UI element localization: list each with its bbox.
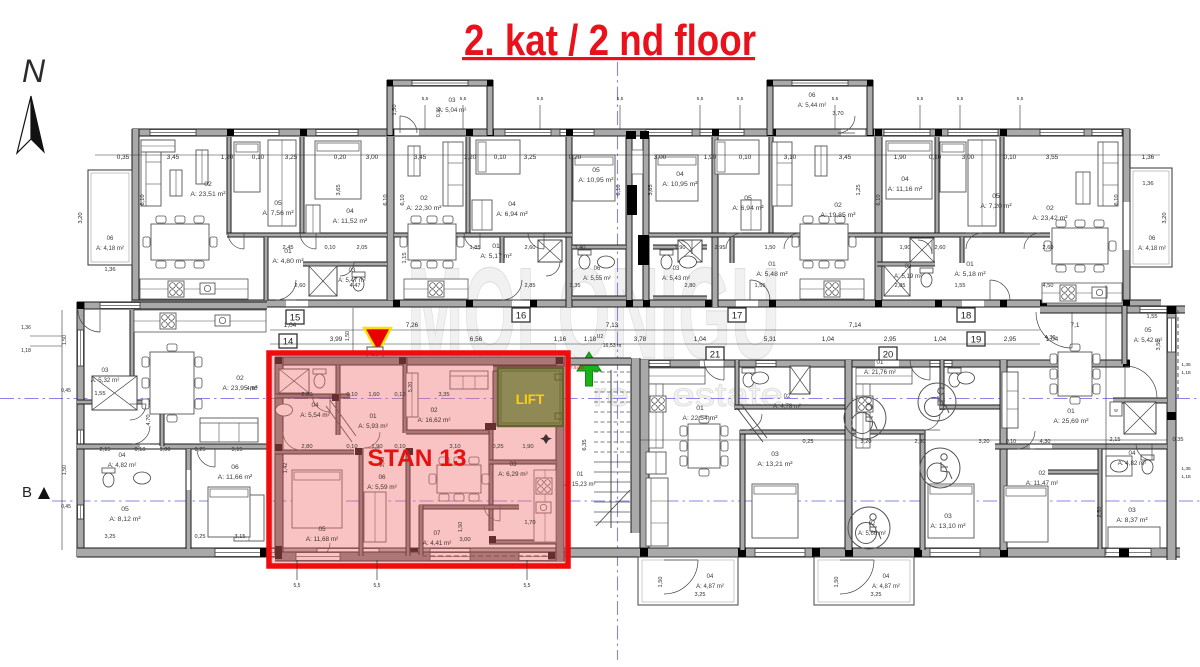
svg-text:1,36: 1,36 <box>1142 181 1153 187</box>
svg-text:05: 05 <box>592 167 600 174</box>
svg-text:5,5: 5,5 <box>697 96 704 102</box>
svg-text:0,45: 0,45 <box>61 504 71 510</box>
svg-text:2,80: 2,80 <box>301 392 312 398</box>
svg-text:2,95: 2,95 <box>1004 336 1017 343</box>
svg-text:05: 05 <box>318 526 326 533</box>
svg-text:5,5: 5,5 <box>737 96 744 102</box>
svg-text:1,18: 1,18 <box>1181 370 1191 376</box>
svg-text:2,05: 2,05 <box>357 245 368 251</box>
svg-text:A: 8,37 m²: A: 8,37 m² <box>1116 517 1148 524</box>
svg-text:3,78: 3,78 <box>634 336 647 343</box>
svg-text:A: 11,68 m²: A: 11,68 m² <box>306 536 339 543</box>
svg-text:04: 04 <box>707 574 714 580</box>
svg-text:1,04: 1,04 <box>934 336 947 343</box>
svg-text:1,55: 1,55 <box>755 283 766 289</box>
svg-text:B: B <box>22 484 32 501</box>
svg-text:0,25: 0,25 <box>492 444 503 450</box>
svg-text:5,5: 5,5 <box>537 96 544 102</box>
svg-text:1,40: 1,40 <box>575 245 586 251</box>
svg-text:LIFT: LIFT <box>516 392 545 407</box>
svg-text:0,10: 0,10 <box>1006 439 1016 445</box>
svg-text:1,36: 1,36 <box>21 325 31 331</box>
svg-text:2,60: 2,60 <box>295 283 306 289</box>
svg-text:2,95: 2,95 <box>715 245 726 251</box>
svg-text:06: 06 <box>378 474 386 481</box>
svg-text:04: 04 <box>346 208 354 215</box>
svg-text:03: 03 <box>771 451 779 458</box>
svg-text:0,35: 0,35 <box>1173 437 1184 443</box>
svg-text:0,25: 0,25 <box>195 534 206 540</box>
svg-text:5,5: 5,5 <box>957 96 964 102</box>
svg-text:1,50: 1,50 <box>62 465 68 475</box>
svg-text:5,5: 5,5 <box>460 96 467 102</box>
svg-text:6,35: 6,35 <box>582 439 588 450</box>
svg-text:17: 17 <box>732 311 743 322</box>
svg-text:3,20: 3,20 <box>78 212 84 223</box>
svg-text:02: 02 <box>1038 470 1046 477</box>
svg-text:03: 03 <box>673 266 680 272</box>
svg-text:A: 19,85 m²: A: 19,85 m² <box>820 212 856 219</box>
svg-text:A: 4,87 m²: A: 4,87 m² <box>696 584 724 590</box>
svg-text:01: 01 <box>577 472 584 478</box>
svg-text:04: 04 <box>1129 450 1136 457</box>
svg-text:0,25: 0,25 <box>195 447 206 453</box>
svg-text:A: 6,94 m²: A: 6,94 m² <box>732 205 764 212</box>
svg-text:1,50: 1,50 <box>765 245 776 251</box>
svg-text:01: 01 <box>877 359 884 366</box>
svg-text:1,55: 1,55 <box>1147 314 1158 320</box>
svg-text:A: 10,95 m²: A: 10,95 m² <box>578 177 614 184</box>
svg-text:5,5: 5,5 <box>422 96 429 102</box>
svg-text:01: 01 <box>966 261 974 268</box>
svg-text:A: 5,43 m²: A: 5,43 m² <box>662 276 690 282</box>
svg-text:03: 03 <box>944 513 952 520</box>
svg-text:02: 02 <box>236 375 244 382</box>
svg-text:1,15: 1,15 <box>402 252 408 263</box>
svg-text:A: 5,66 m²: A: 5,66 m² <box>858 531 886 537</box>
svg-text:21: 21 <box>710 350 721 361</box>
svg-text:A: 4,18 m²: A: 4,18 m² <box>96 246 124 252</box>
svg-text:A: 22,30 m²: A: 22,30 m² <box>406 205 442 212</box>
svg-text:03: 03 <box>349 268 356 274</box>
svg-text:6,56: 6,56 <box>470 336 483 343</box>
svg-text:16: 16 <box>516 311 527 322</box>
svg-text:02: 02 <box>869 521 876 527</box>
svg-text:A: 5,18 m²: A: 5,18 m² <box>954 271 986 278</box>
svg-text:A: 16,62 m²: A: 16,62 m² <box>417 417 450 424</box>
svg-text:04: 04 <box>901 176 909 183</box>
svg-text:03: 03 <box>449 97 456 104</box>
svg-text:A: 5,93 m²: A: 5,93 m² <box>358 423 387 430</box>
svg-text:5,5: 5,5 <box>917 96 924 102</box>
svg-text:U2: U2 <box>597 334 604 340</box>
svg-text:01: 01 <box>696 405 704 412</box>
svg-text:6,10: 6,10 <box>1114 194 1120 205</box>
svg-text:6,10: 6,10 <box>400 194 406 205</box>
svg-text:4,50: 4,50 <box>1043 283 1054 289</box>
svg-text:A: 25,69 m²: A: 25,69 m² <box>1053 418 1089 425</box>
svg-text:1,90: 1,90 <box>522 444 533 450</box>
svg-text:03: 03 <box>905 264 912 270</box>
svg-text:A: 22,54 m²: A: 22,54 m² <box>682 415 718 422</box>
svg-text:A: 11,52 m²: A: 11,52 m² <box>333 218 368 225</box>
svg-text:A: 7,20 m²: A: 7,20 m² <box>980 203 1012 210</box>
svg-text:0,10: 0,10 <box>394 392 405 398</box>
svg-text:2,60: 2,60 <box>935 245 946 251</box>
svg-text:A: 11,47 m²: A: 11,47 m² <box>1026 480 1059 487</box>
svg-text:05: 05 <box>1145 327 1152 334</box>
svg-text:7,13: 7,13 <box>606 322 619 329</box>
svg-text:06: 06 <box>594 266 601 272</box>
svg-text:w: w <box>1114 408 1118 414</box>
svg-text:20: 20 <box>883 350 894 361</box>
svg-text:5,5: 5,5 <box>374 583 381 589</box>
svg-text:5,5: 5,5 <box>524 583 531 589</box>
svg-text:6,10: 6,10 <box>383 194 389 205</box>
svg-text:A: 7,56 m²: A: 7,56 m² <box>262 210 294 217</box>
svg-text:5,5: 5,5 <box>832 96 839 102</box>
svg-text:04: 04 <box>119 452 126 459</box>
svg-text:1,50: 1,50 <box>834 577 840 588</box>
svg-text:A: 13,10 m²: A: 13,10 m² <box>930 523 966 530</box>
svg-text:06: 06 <box>1149 236 1156 242</box>
svg-text:1,85: 1,85 <box>470 245 481 251</box>
svg-text:A: 4,80 m²: A: 4,80 m² <box>272 258 304 265</box>
svg-text:A: 21,76 m²: A: 21,76 m² <box>864 369 896 376</box>
svg-text:1,18: 1,18 <box>584 336 597 343</box>
svg-text:N: N <box>22 53 46 89</box>
svg-text:4,90: 4,90 <box>247 386 258 392</box>
svg-text:A: 5,04 m²: A: 5,04 m² <box>438 107 467 114</box>
svg-text:1,36: 1,36 <box>1181 466 1191 472</box>
svg-text:0,45: 0,45 <box>61 388 71 394</box>
svg-text:3,65: 3,65 <box>648 184 654 195</box>
svg-text:01: 01 <box>369 413 377 420</box>
svg-text:A: 4,78 m²: A: 4,78 m² <box>773 404 801 410</box>
svg-text:06: 06 <box>231 464 239 471</box>
svg-text:6,10: 6,10 <box>140 194 146 205</box>
svg-text:1,50: 1,50 <box>458 522 464 533</box>
svg-text:07: 07 <box>434 530 441 537</box>
svg-text:02: 02 <box>834 202 842 209</box>
svg-text:2,95: 2,95 <box>884 336 897 343</box>
svg-text:A: 4,18 m²: A: 4,18 m² <box>1138 246 1166 252</box>
svg-text:7,26: 7,26 <box>406 322 419 329</box>
svg-text:02: 02 <box>430 407 438 414</box>
svg-text:A: 11,16 m²: A: 11,16 m² <box>888 186 923 193</box>
svg-text:2,60: 2,60 <box>1043 245 1054 251</box>
svg-text:1,70: 1,70 <box>524 520 535 526</box>
svg-text:STAN 13: STAN 13 <box>368 445 467 472</box>
svg-text:1,04: 1,04 <box>694 336 707 343</box>
svg-text:0,36: 0,36 <box>436 107 442 117</box>
svg-text:A: 8,12 m²: A: 8,12 m² <box>109 516 141 523</box>
svg-text:5,31: 5,31 <box>764 336 777 343</box>
svg-text:A: 4,41 m²: A: 4,41 m² <box>423 540 452 547</box>
svg-text:06: 06 <box>809 92 816 99</box>
svg-text:A: 5,32 m²: A: 5,32 m² <box>91 377 120 384</box>
svg-text:3,65: 3,65 <box>336 184 342 195</box>
svg-text:4,47: 4,47 <box>350 283 361 289</box>
svg-text:6,10: 6,10 <box>616 184 622 195</box>
svg-text:A: 4,87 m²: A: 4,87 m² <box>872 584 900 590</box>
svg-text:2,85: 2,85 <box>525 283 536 289</box>
svg-text:04: 04 <box>883 574 890 580</box>
svg-text:03: 03 <box>509 461 517 468</box>
svg-text:5,5: 5,5 <box>1017 96 1024 102</box>
svg-text:2,45: 2,45 <box>283 245 294 251</box>
svg-text:03: 03 <box>102 367 109 374</box>
svg-text:3,35: 3,35 <box>438 392 449 398</box>
svg-text:3,15: 3,15 <box>235 534 246 540</box>
svg-text:1,50: 1,50 <box>62 335 68 345</box>
svg-text:16,53 m: 16,53 m <box>603 343 622 349</box>
svg-text:2,15: 2,15 <box>1110 437 1121 443</box>
svg-text:1,50: 1,50 <box>345 331 351 341</box>
svg-text:A: 23,51 m²: A: 23,51 m² <box>190 191 226 198</box>
svg-text:4,30: 4,30 <box>1045 335 1056 341</box>
svg-text:1,36: 1,36 <box>1181 362 1191 368</box>
svg-text:A: 5,54 m²: A: 5,54 m² <box>300 412 329 419</box>
svg-text:3,15: 3,15 <box>232 447 243 453</box>
svg-text:3,25: 3,25 <box>871 592 882 598</box>
svg-text:05: 05 <box>744 195 752 202</box>
svg-text:1,18: 1,18 <box>1181 474 1191 480</box>
svg-text:1,50: 1,50 <box>392 104 398 115</box>
svg-text:02: 02 <box>784 394 791 400</box>
svg-text:5,20: 5,20 <box>408 382 414 393</box>
svg-text:18: 18 <box>961 311 972 322</box>
svg-text:3,35: 3,35 <box>570 283 581 289</box>
svg-text:01: 01 <box>1067 408 1075 415</box>
svg-text:A: 6,94 m²: A: 6,94 m² <box>496 211 528 218</box>
svg-text:7,14: 7,14 <box>849 322 862 329</box>
svg-text:2,50: 2,50 <box>1097 507 1103 518</box>
svg-text:1,42: 1,42 <box>283 463 289 474</box>
svg-text:0,10: 0,10 <box>325 245 336 251</box>
svg-text:04: 04 <box>676 171 684 178</box>
svg-text:2,60: 2,60 <box>525 245 536 251</box>
svg-text:1,60: 1,60 <box>368 392 379 398</box>
svg-text:A: 5,44 m²: A: 5,44 m² <box>798 102 827 109</box>
svg-text:14: 14 <box>283 337 294 348</box>
svg-text:2,15: 2,15 <box>100 447 111 453</box>
svg-text:3,25: 3,25 <box>105 534 116 540</box>
svg-text:01: 01 <box>492 243 500 250</box>
svg-text:2,85: 2,85 <box>895 283 906 289</box>
svg-text:A: 11,66 m²: A: 11,66 m² <box>218 474 253 481</box>
svg-text:05: 05 <box>992 193 1000 200</box>
svg-text:A: 5,48 m²: A: 5,48 m² <box>756 271 788 278</box>
svg-text:02: 02 <box>204 181 212 188</box>
svg-text:3,99: 3,99 <box>330 336 343 343</box>
svg-text:02: 02 <box>420 195 428 202</box>
svg-text:1,25: 1,25 <box>856 184 862 195</box>
svg-text:A: 5,59 m²: A: 5,59 m² <box>367 484 396 491</box>
svg-text:1,50: 1,50 <box>658 577 664 588</box>
svg-text:04: 04 <box>311 402 319 409</box>
svg-text:A: 10,95 m²: A: 10,95 m² <box>662 181 698 188</box>
svg-text:1,55: 1,55 <box>94 391 105 397</box>
svg-text:2,80: 2,80 <box>301 444 312 450</box>
svg-text:0,10: 0,10 <box>346 444 357 450</box>
svg-text:A: 4,82 m²: A: 4,82 m² <box>108 462 137 469</box>
svg-text:04: 04 <box>508 201 516 208</box>
svg-text:03: 03 <box>1128 507 1136 514</box>
svg-text:5,5: 5,5 <box>294 583 301 589</box>
svg-text:3,20: 3,20 <box>1162 212 1168 223</box>
svg-text:A: 5,17 m²: A: 5,17 m² <box>480 253 512 260</box>
svg-text:A: 6,29 m²: A: 6,29 m² <box>498 471 527 478</box>
svg-text:6,10: 6,10 <box>876 194 882 205</box>
svg-text:1,00: 1,00 <box>160 447 171 453</box>
svg-text:02: 02 <box>1046 205 1054 212</box>
svg-text:5,5: 5,5 <box>617 96 624 102</box>
svg-text:3,25: 3,25 <box>695 592 706 598</box>
svg-text:A: 23,42 m²: A: 23,42 m² <box>1032 215 1068 222</box>
svg-text:A: 13,21 m²: A: 13,21 m² <box>757 461 793 468</box>
svg-text:2,80: 2,80 <box>685 283 696 289</box>
svg-text:1,16: 1,16 <box>554 336 567 343</box>
svg-text:3,50: 3,50 <box>1156 340 1162 351</box>
svg-text:1,36: 1,36 <box>104 267 115 273</box>
svg-text:01: 01 <box>768 261 776 268</box>
svg-text:1,90: 1,90 <box>900 245 911 251</box>
svg-text:3,00: 3,00 <box>459 537 470 543</box>
svg-text:A: 4,82 m²: A: 4,82 m² <box>1118 460 1147 467</box>
svg-text:06: 06 <box>107 236 114 242</box>
svg-text:1,18: 1,18 <box>21 348 31 354</box>
svg-text:1,90: 1,90 <box>675 245 686 251</box>
svg-text:1,04: 1,04 <box>284 322 297 329</box>
svg-text:0,10: 0,10 <box>346 392 357 398</box>
svg-text:1,55: 1,55 <box>955 283 966 289</box>
svg-text:3,70: 3,70 <box>832 111 843 117</box>
svg-text:4,70: 4,70 <box>146 414 152 425</box>
svg-text:A: 5,19 m²: A: 5,19 m² <box>894 274 922 280</box>
svg-text:A: 5,55 m²: A: 5,55 m² <box>583 276 611 282</box>
svg-text:1,04: 1,04 <box>822 336 835 343</box>
svg-text:05: 05 <box>274 200 282 207</box>
svg-text:05: 05 <box>121 506 129 513</box>
svg-text:0,10: 0,10 <box>135 447 146 453</box>
